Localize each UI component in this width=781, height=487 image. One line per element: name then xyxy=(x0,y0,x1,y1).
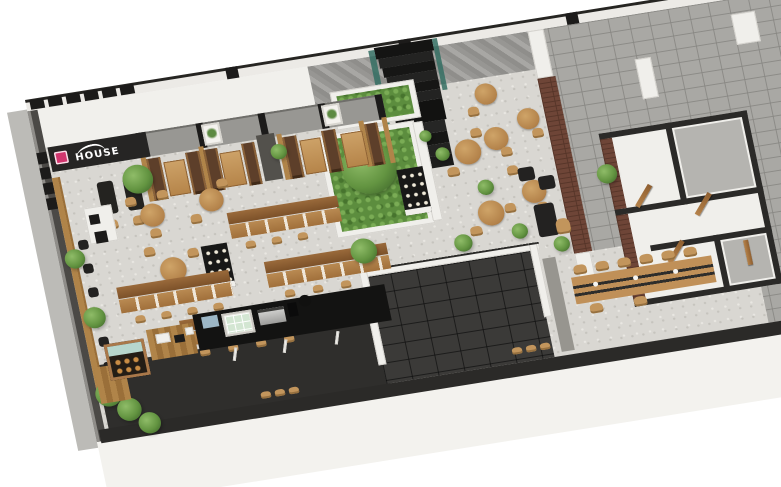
wicker-chair xyxy=(469,127,482,138)
pastry-display-case xyxy=(103,338,151,381)
dining-chair xyxy=(156,189,169,200)
coffee-grinder xyxy=(94,230,108,243)
floor-plan: HOUSE xyxy=(25,0,781,461)
pos-terminal xyxy=(174,334,186,343)
glazing-mullion-block xyxy=(39,167,51,180)
stool-block xyxy=(284,289,296,298)
wicker-chair xyxy=(467,106,480,117)
wicker-chair xyxy=(504,202,517,213)
glazing-mullion-block xyxy=(36,152,48,165)
stool-block xyxy=(135,315,147,324)
dining-chair xyxy=(187,247,200,258)
brand-logo-icon xyxy=(54,150,70,164)
wicker-chair xyxy=(531,127,544,138)
dining-chair xyxy=(190,213,203,224)
dining-chair xyxy=(124,196,137,207)
stool-block xyxy=(245,240,257,249)
stool-block xyxy=(340,280,352,289)
dining-chair xyxy=(143,246,156,257)
wall-pilaster xyxy=(225,66,239,79)
bar-stool xyxy=(77,239,89,250)
napkin-box xyxy=(185,327,195,336)
restroom-floor-gray-a xyxy=(674,119,754,196)
stool-block xyxy=(312,284,324,293)
gelato-case xyxy=(221,309,256,337)
stool-block xyxy=(271,236,283,245)
wicker-chair xyxy=(469,225,483,236)
wicker-chair xyxy=(500,146,513,157)
cafe-floorplan-render: HOUSE xyxy=(0,0,781,487)
wall-pilaster xyxy=(565,12,579,25)
stool-block xyxy=(161,310,173,319)
stool-block xyxy=(297,232,309,241)
dining-chair xyxy=(149,228,162,239)
lounge-armchair xyxy=(537,175,556,191)
lounge-armchair xyxy=(517,166,536,182)
wicker-chair xyxy=(447,166,461,177)
bar-stool xyxy=(87,287,99,298)
dining-chair xyxy=(215,178,228,189)
plan-shapes-layer xyxy=(25,0,781,100)
bar-stool xyxy=(82,263,94,274)
coffee-machine xyxy=(89,214,101,225)
